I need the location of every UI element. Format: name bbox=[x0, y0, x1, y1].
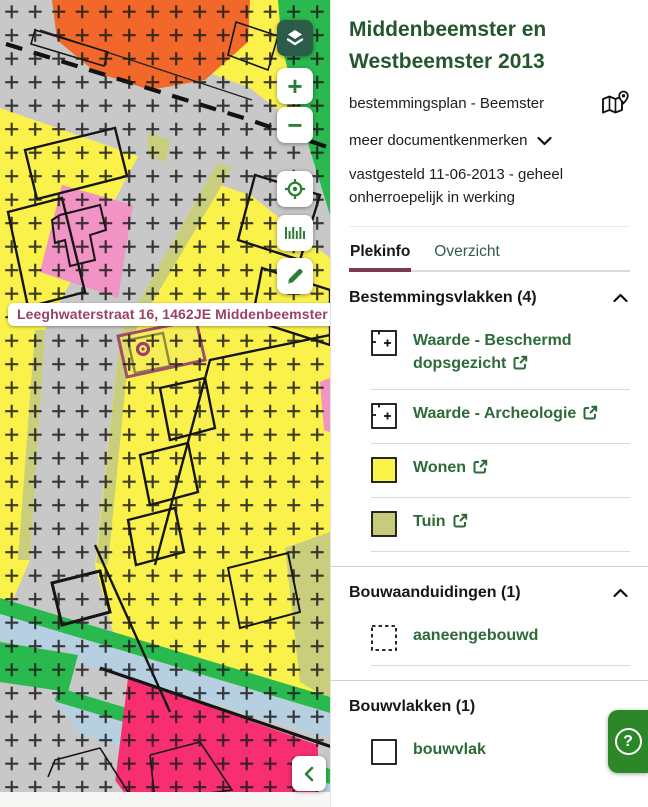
legend-item-link[interactable]: Waarde - Beschermd dopsgezicht bbox=[413, 329, 623, 375]
more-document-details-toggle[interactable]: meer documentkenmerken bbox=[349, 132, 552, 149]
map-bottom-strip bbox=[0, 792, 330, 807]
zoom-out-button[interactable]: − bbox=[277, 107, 313, 143]
chevron-up-icon bbox=[613, 293, 628, 303]
legend-item-aaneengebouwd[interactable]: aaneengebouwd bbox=[349, 612, 630, 663]
chevron-left-icon bbox=[302, 766, 316, 782]
legend-item-waarde-beschermd[interactable]: Waarde - Beschermd dopsgezicht bbox=[349, 317, 630, 387]
legend-item-wonen[interactable]: Wonen bbox=[349, 444, 630, 495]
swatch-tuin-olive bbox=[371, 511, 397, 537]
chevron-down-icon bbox=[537, 136, 552, 146]
draw-button[interactable] bbox=[277, 258, 313, 294]
chevron-up-icon bbox=[613, 588, 628, 598]
plan-type-label: bestemmingsplan - Beemster bbox=[349, 95, 544, 112]
measure-ruler-icon bbox=[284, 224, 306, 242]
layers-icon bbox=[284, 27, 306, 49]
locate-button[interactable] bbox=[277, 171, 313, 207]
section-bouwaanduidingen-toggle[interactable]: Bouwaanduidingen (1) bbox=[349, 567, 630, 612]
zoom-in-button[interactable]: + bbox=[277, 68, 313, 104]
section-bestemmingsvlakken-toggle[interactable]: Bestemmingsvlakken (4) bbox=[349, 272, 630, 317]
external-link-icon bbox=[453, 513, 468, 528]
plan-status-text: vastgesteld 11-06-2013 - geheel onherroe… bbox=[349, 163, 621, 210]
pencil-icon bbox=[284, 265, 306, 287]
zoning-map[interactable]: Leeghwaterstraat 16, 1462JE Middenbeemst… bbox=[0, 0, 330, 807]
page-title: Middenbeemster en Westbeemster 2013 bbox=[349, 14, 599, 77]
locate-icon bbox=[284, 178, 306, 200]
map-with-pin-icon bbox=[600, 90, 630, 117]
swatch-dashed-outline bbox=[371, 625, 397, 651]
panel-collapse-button[interactable] bbox=[292, 756, 326, 791]
legend-item-link[interactable]: bouwvlak bbox=[413, 738, 486, 761]
swatch-cross-pattern bbox=[371, 403, 397, 429]
external-link-icon bbox=[513, 355, 528, 370]
legend-item-link[interactable]: Wonen bbox=[413, 456, 488, 479]
help-button[interactable]: ? bbox=[608, 710, 648, 773]
tab-plekinfo[interactable]: Plekinfo bbox=[349, 233, 411, 272]
item-divider bbox=[371, 551, 630, 552]
legend-item-link[interactable]: aaneengebouwd bbox=[413, 624, 538, 647]
swatch-cross-pattern bbox=[371, 330, 397, 356]
address-label: Leeghwaterstraat 16, 1462JE Middenbeemst… bbox=[8, 303, 330, 326]
legend-item-tuin[interactable]: Tuin bbox=[349, 498, 630, 549]
plan-header: Middenbeemster en Westbeemster 2013 best… bbox=[349, 0, 630, 227]
legend-item-bouwvlak[interactable]: bouwvlak bbox=[349, 726, 630, 777]
legend-item-waarde-archeologie[interactable]: Waarde - Archeologie bbox=[349, 390, 630, 441]
plan-viewer-app: Leeghwaterstraat 16, 1462JE Middenbeemst… bbox=[0, 0, 648, 807]
panel-tabs: Plekinfo Overzicht bbox=[349, 233, 630, 272]
measure-button[interactable] bbox=[277, 215, 313, 251]
section-bouwvlakken-toggle[interactable]: Bouwvlakken (1) bbox=[349, 681, 630, 726]
legend-item-link[interactable]: Tuin bbox=[413, 510, 468, 533]
layers-button[interactable] bbox=[277, 20, 313, 56]
external-link-icon bbox=[473, 459, 488, 474]
item-divider bbox=[371, 665, 630, 666]
question-mark-icon: ? bbox=[615, 728, 642, 755]
tab-overzicht[interactable]: Overzicht bbox=[433, 233, 500, 272]
plan-detail-panel: Middenbeemster en Westbeemster 2013 best… bbox=[330, 0, 648, 807]
legend-item-link[interactable]: Waarde - Archeologie bbox=[413, 402, 598, 425]
swatch-wonen-yellow bbox=[371, 457, 397, 483]
swatch-solid-outline bbox=[371, 739, 397, 765]
external-link-icon bbox=[583, 405, 598, 420]
